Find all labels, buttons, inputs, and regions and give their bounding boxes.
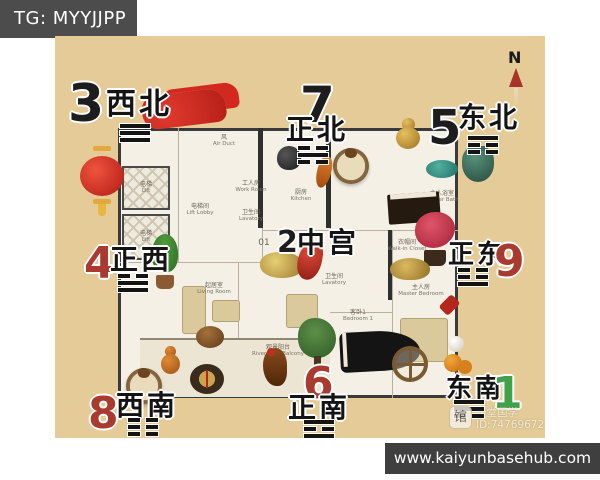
room-label-air-duct: 风Air Duct xyxy=(213,134,235,148)
compass-north-arrow-icon xyxy=(509,68,523,87)
sector-sw-number: 8 xyxy=(88,392,119,436)
sector-n-direction: 正北 xyxy=(286,116,348,144)
sector-s-trigram xyxy=(304,420,334,438)
sector-ne-direction: 东北 xyxy=(458,104,520,132)
room-label-lavatory-1: 卫生间Lavatory xyxy=(239,209,263,223)
sector-e-trigram xyxy=(458,268,488,286)
red-knot-icon xyxy=(443,282,456,314)
dharma-wheel-icon xyxy=(392,346,428,382)
website-url-banner: www.kaiyunbasehub.com xyxy=(385,443,600,474)
room-label-work-room: 工人房Work Room xyxy=(235,180,266,194)
coffee-table xyxy=(212,300,240,322)
wall-line xyxy=(178,128,179,262)
room-label-bedroom-1: 客卧1Bedroom 1 xyxy=(343,309,373,323)
room-label-kitchen: 厨房Kitchen xyxy=(291,189,312,203)
sector-w-direction: 正西 xyxy=(110,246,172,274)
rooster-icon xyxy=(263,352,287,386)
watermark-logo-icon: 馆 xyxy=(450,407,471,428)
sector-sw-direction: 西南 xyxy=(116,392,178,420)
watermark-id: ID:74769672 xyxy=(476,419,544,431)
orange-fruits-icon xyxy=(444,354,462,372)
sector-s-direction: 正南 xyxy=(288,394,350,422)
brown-pot-icon xyxy=(196,326,224,348)
red-lantern-icon xyxy=(80,146,124,216)
orange-gourd-icon xyxy=(161,346,180,374)
sector-w-trigram xyxy=(118,274,148,292)
room-label-lift-lobby: 电梯间Lift Lobby xyxy=(187,203,214,217)
telegram-tag-banner: TG: MYYJJPP xyxy=(0,0,137,38)
room-label-lift-1: 电梯Lift xyxy=(140,181,152,195)
sector-ne-number: 5 xyxy=(428,104,461,152)
compass-n-label: N xyxy=(508,48,521,67)
sector-n-trigram xyxy=(298,146,328,164)
room-label-master-bedroom: 主人房Master Bedroom xyxy=(398,284,443,298)
fengshui-floorplan-image: TG: MYYJJPP www.kaiyunbasehub.com 风Air D… xyxy=(0,0,600,480)
sector-nw-direction: 西北 xyxy=(106,90,172,120)
sector-center-number: 2 xyxy=(277,228,298,258)
unit-number: 01 xyxy=(258,238,269,248)
room-label-living-room: 起居室Living Room xyxy=(197,282,231,296)
sector-center-direction: 中宫 xyxy=(297,229,359,257)
white-ball-icon xyxy=(448,336,464,352)
golden-toad-icon xyxy=(390,258,430,280)
sector-ne-trigram xyxy=(468,136,498,154)
luopan-compass-icon xyxy=(190,364,224,394)
compass-arrow-tail xyxy=(514,88,518,106)
watermark: 馆 一堂国学 ID:74769672 xyxy=(450,407,544,431)
room-label-lavatory-2: 卫生间Lavatory xyxy=(322,273,346,287)
watermark-brand: 一堂国学 xyxy=(476,407,544,419)
jade-ornament-icon xyxy=(426,160,458,178)
sector-sw-trigram xyxy=(128,418,158,436)
sector-nw-trigram xyxy=(120,124,150,142)
sector-e-number: 9 xyxy=(494,240,525,284)
golden-gourd-icon xyxy=(396,118,420,149)
sector-nw-number: 3 xyxy=(68,78,104,130)
room-label-lift-2: 电梯Lift xyxy=(140,230,152,244)
